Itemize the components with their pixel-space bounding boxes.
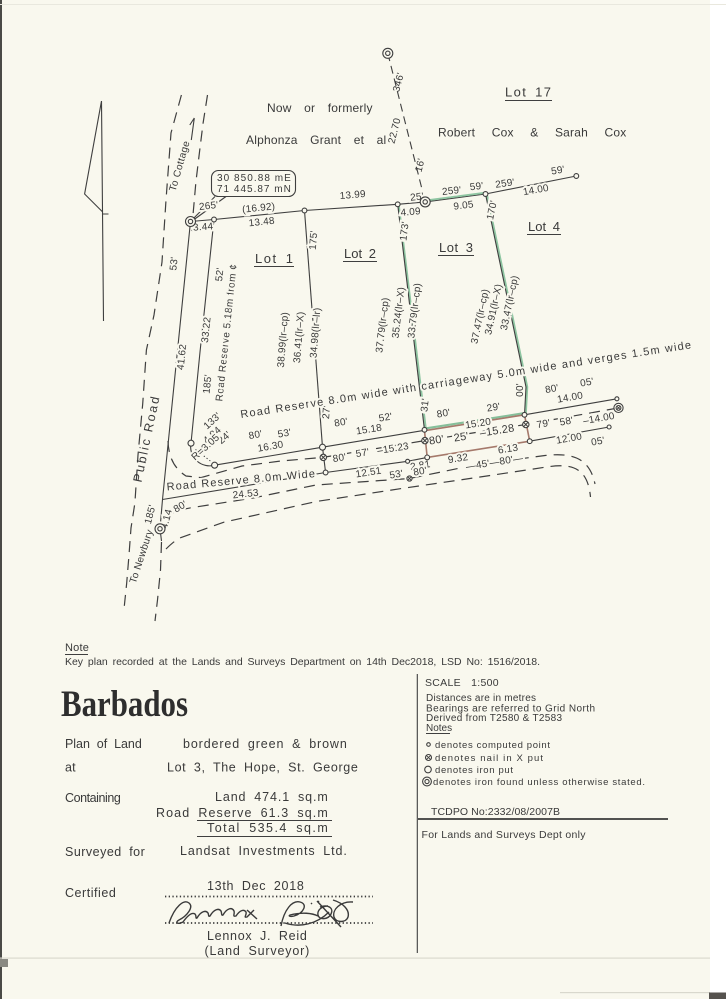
svg-text:259': 259' [442,185,462,198]
svg-text:denotes nail in X put: denotes nail in X put [435,753,543,764]
svg-text:Lot 17: Lot 17 [505,85,552,100]
svg-text:bordered green & brown: bordered green & brown [183,737,347,751]
svg-text:05': 05' [590,435,605,448]
svg-text:Now or formerly: Now or formerly [267,101,373,115]
svg-text:80': 80' [248,429,263,442]
svg-text:Lennox J. Reid: Lennox J. Reid [207,929,307,943]
svg-text:denotes iron found unless othe: denotes iron found unless otherwise stat… [433,777,645,788]
svg-text:at: at [65,761,76,775]
svg-text:13.99: 13.99 [339,189,366,202]
svg-text:Containing: Containing [65,791,121,805]
svg-text:For Lands and Surveys Dept onl: For Lands and Surveys Dept only [422,829,587,841]
svg-text:Lot 4: Lot 4 [528,219,561,234]
svg-text:185': 185' [202,374,215,394]
svg-text:31': 31' [419,398,432,413]
svg-text:Landsat Investments Ltd.: Landsat Investments Ltd. [180,844,347,858]
svg-text:Lot 3: Lot 3 [439,240,474,255]
svg-text:3.44: 3.44 [193,221,214,233]
svg-text:79': 79' [536,418,551,431]
svg-text:denotes iron put: denotes iron put [435,765,513,776]
svg-text:00': 00' [515,383,526,397]
svg-text:80': 80' [428,433,445,447]
svg-text:Distances are in metres: Distances are in metres [426,693,536,704]
svg-text:05': 05' [579,376,594,389]
svg-text:Notes: Notes [426,723,452,734]
svg-text:Plan of Land: Plan of Land [65,737,142,751]
svg-text:25': 25' [453,430,470,444]
svg-text:TCDPO No:2332/08/2007B: TCDPO No:2332/08/2007B [431,806,560,818]
svg-text:Key plan recorded at the Lands: Key plan recorded at the Lands and Surve… [65,656,540,668]
svg-text:Lot 1: Lot 1 [255,251,294,266]
svg-text:Certified: Certified [65,886,116,900]
svg-text:Barbados: Barbados [61,684,188,725]
svg-text:4.09: 4.09 [400,206,421,219]
svg-text:Surveyed for: Surveyed for [65,845,145,859]
svg-text:53': 53' [168,256,180,271]
svg-text:Lot 3, The Hope, St. George: Lot 3, The Hope, St. George [167,761,358,775]
svg-text:Total 535.4 sq.m: Total 535.4 sq.m [207,821,328,835]
svg-text:13th Dec 2018: 13th Dec 2018 [207,879,304,893]
svg-text:80': 80' [413,466,428,479]
svg-text:173': 173' [398,221,411,242]
svg-text:29': 29' [486,402,501,415]
svg-text:Alphonza Grant et al: Alphonza Grant et al [246,133,386,147]
svg-text:Robert Cox & Sarah Cox: Robert Cox & Sarah Cox [438,126,626,140]
svg-text:58': 58' [559,415,574,428]
svg-text:SCALE 1:500: SCALE 1:500 [425,677,499,689]
svg-text:80': 80' [334,417,349,430]
svg-text:52': 52' [214,267,226,282]
svg-text:denotes computed point: denotes computed point [435,740,550,751]
svg-text:57': 57' [355,447,370,460]
svg-text:53': 53' [277,427,292,440]
svg-text:30 850.88 mE: 30 850.88 mE [217,173,291,184]
svg-text:Note: Note [65,642,89,654]
svg-text:59': 59' [469,181,484,193]
svg-text:Road Reserve 61.3 sq.m: Road Reserve 61.3 sq.m [156,806,328,820]
svg-text:80': 80' [332,452,347,465]
svg-text:71 445.87 mN: 71 445.87 mN [217,184,291,195]
svg-text:Land 474.1 sq.m: Land 474.1 sq.m [215,790,328,804]
svg-text:53': 53' [389,469,404,482]
svg-text:Lot 2: Lot 2 [344,246,377,261]
svg-text:265': 265' [199,200,219,213]
svg-text:(Land Surveyor): (Land Surveyor) [205,944,310,958]
svg-text:80': 80' [436,408,451,421]
svg-text:59': 59' [550,164,565,177]
svg-text:175': 175' [308,230,320,250]
